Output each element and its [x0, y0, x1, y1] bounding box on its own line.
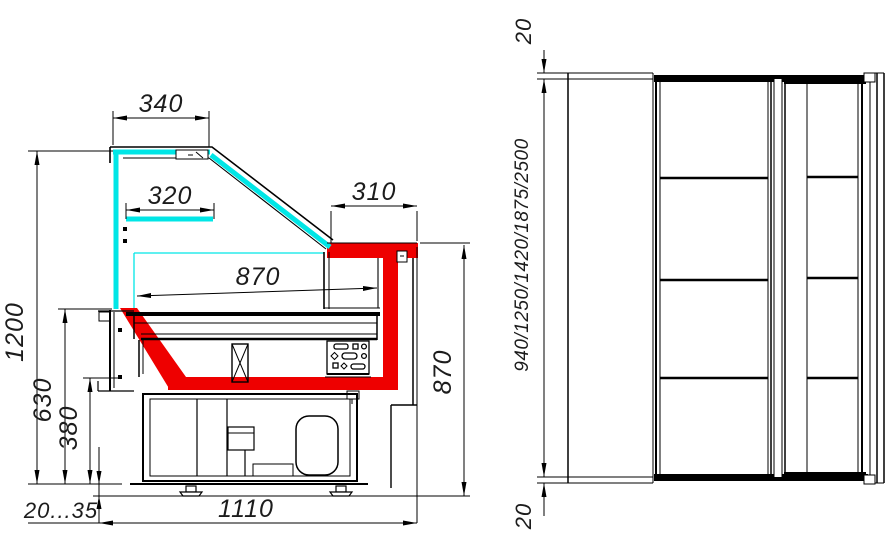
- dim-leg-adjust-label: 20...35: [23, 498, 98, 523]
- technical-drawing: 340 320 310 870 1200 630 380 20...35 111…: [0, 0, 894, 559]
- dim-1110-label: 1110: [218, 495, 274, 523]
- dim-20-bottom-label: 20: [511, 503, 536, 530]
- machine-compartment: [130, 394, 368, 484]
- dim-1200-label: 1200: [1, 302, 29, 362]
- glass-panels: [113, 150, 330, 309]
- drip-tray: [253, 464, 293, 476]
- dim-380-label: 380: [55, 406, 83, 451]
- drawing-canvas: 340 320 310 870 1200 630 380 20...35 111…: [0, 0, 894, 559]
- dim-630-label: 630: [29, 378, 57, 423]
- sliding-door-right: [784, 77, 866, 479]
- dim-320-label: 320: [148, 182, 193, 210]
- rear-trim: [864, 73, 884, 484]
- end-panel: [568, 73, 653, 483]
- side-view-dimensions: 340 320 310 870 1200 630 380 20...35 111…: [1, 90, 470, 526]
- dim-870v-label: 870: [429, 350, 457, 395]
- dim-lengths-label: 940/1250/1420/1875/2500: [512, 138, 533, 371]
- dim-870h-label: 870: [236, 263, 281, 291]
- front-lower-panel: [98, 310, 134, 391]
- dim-340-label: 340: [139, 90, 184, 118]
- relay-box: [228, 427, 254, 450]
- compressor: [296, 416, 338, 475]
- door-track: [774, 79, 783, 477]
- shelf-bracket: [123, 239, 127, 243]
- dim-310-label: 310: [352, 178, 397, 206]
- front-slanted-glass: [211, 155, 330, 247]
- well-glass-partition: [134, 253, 324, 308]
- end-view-dimensions: 20 940/1250/1420/1875/2500 20: [511, 18, 569, 530]
- shelf-bracket: [123, 227, 127, 231]
- shelf-lines: [807, 177, 858, 378]
- dim-20-top-label: 20: [511, 18, 536, 45]
- end-view: 20 940/1250/1420/1875/2500 20: [511, 18, 884, 530]
- evaporator-box: [232, 344, 248, 382]
- shelf-lines: [660, 178, 768, 378]
